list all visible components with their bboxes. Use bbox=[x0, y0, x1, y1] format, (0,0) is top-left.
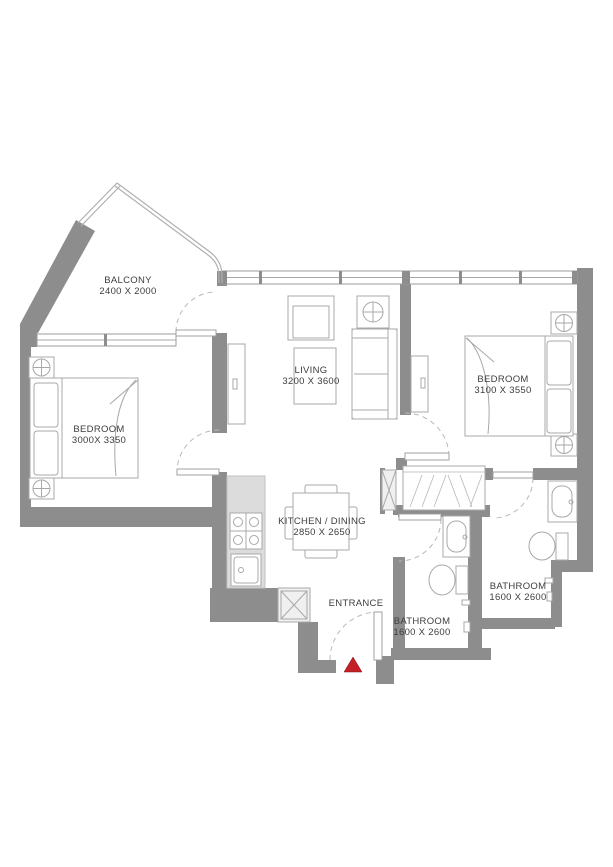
right-outer-wall bbox=[577, 268, 593, 572]
bedroom2-furniture bbox=[382, 312, 577, 510]
pillow bbox=[34, 431, 58, 475]
bedroom1-door-leaf bbox=[177, 469, 219, 475]
closet bbox=[403, 466, 485, 510]
kitchen-dims: 2850 X 2650 bbox=[293, 527, 350, 538]
balcony-dims: 2400 X 2000 bbox=[99, 286, 156, 297]
bathroom2-dims: 1600 X 2600 bbox=[489, 592, 546, 603]
living-label: LIVING bbox=[295, 365, 328, 376]
vestibule-bottom-wall bbox=[298, 660, 336, 673]
bathroom1-door-arc bbox=[399, 519, 441, 561]
toilet-tank bbox=[456, 566, 468, 594]
living-bedroom2-wall bbox=[400, 279, 411, 415]
floor-plan-page: BALCONY 2400 X 2000 BEDROOM 3000X 3350 L… bbox=[0, 0, 613, 867]
vestibule-left-wall bbox=[298, 622, 318, 664]
pillow bbox=[34, 383, 58, 427]
entrance-door-arc bbox=[330, 612, 378, 660]
bathroom2-top-wall-left bbox=[485, 468, 493, 480]
kitchen-bottom-wall bbox=[210, 588, 278, 622]
bedroom1-dims: 3000X 3350 bbox=[72, 435, 126, 446]
entrance-door-leaf bbox=[374, 612, 382, 660]
bathroom1-door-leaf bbox=[399, 514, 441, 520]
window-mullion bbox=[104, 334, 107, 346]
kitchen-left-wall bbox=[212, 472, 227, 588]
bathroom2-label: BATHROOM bbox=[490, 581, 547, 592]
living-furniture bbox=[228, 296, 397, 424]
window-mullion bbox=[459, 271, 462, 284]
window-mullion bbox=[259, 271, 262, 284]
bedroom1-living-wall bbox=[212, 333, 227, 433]
balcony-railing bbox=[78, 183, 222, 283]
bathroom1-left-wall bbox=[393, 557, 405, 660]
bedroom2-label: BEDROOM bbox=[477, 374, 528, 385]
bedroom1-bottom-wall bbox=[20, 507, 213, 527]
toilet bbox=[429, 565, 455, 595]
bedroom2-door-arc bbox=[405, 413, 449, 457]
bathroom2-right-wall bbox=[551, 560, 562, 627]
toilet bbox=[529, 532, 555, 560]
balcony-label: BALCONY bbox=[104, 275, 152, 286]
kitchen-label: KITCHEN / DINING bbox=[278, 516, 366, 527]
bathroom1-fixtures bbox=[429, 516, 470, 632]
armchair bbox=[288, 296, 334, 340]
window-mullion bbox=[519, 271, 522, 284]
bedroom1-door-arc bbox=[177, 430, 219, 472]
bathroom1-label: BATHROOM bbox=[394, 616, 451, 627]
pillow bbox=[547, 389, 571, 433]
balcony-door-leaf bbox=[176, 330, 216, 336]
bathroom2-door-leaf bbox=[493, 472, 533, 478]
window-mullion bbox=[339, 271, 342, 284]
floor-plan-svg: BALCONY 2400 X 2000 BEDROOM 3000X 3350 L… bbox=[0, 0, 613, 867]
bedroom2-dims: 3100 X 3550 bbox=[474, 385, 531, 396]
bathroom2-top-wall-right bbox=[533, 468, 577, 480]
bedroom2-door-leaf bbox=[405, 453, 449, 460]
toilet-tank bbox=[556, 533, 568, 560]
pillow bbox=[547, 341, 571, 385]
window-mullion bbox=[402, 271, 410, 284]
bedroom1-label: BEDROOM bbox=[73, 424, 124, 435]
kitchen-sink bbox=[231, 554, 261, 586]
bathroom1-dims: 1600 X 2600 bbox=[393, 627, 450, 638]
balcony-door-arc bbox=[176, 292, 216, 332]
entrance-label: ENTRANCE bbox=[329, 598, 384, 609]
entrance-marker-icon bbox=[344, 657, 362, 672]
living-dims: 3200 X 3600 bbox=[282, 376, 339, 387]
balcony-angled-wall bbox=[20, 220, 95, 333]
bathroom1-bottom-wall bbox=[391, 648, 491, 660]
bathroom2-bottom-wall bbox=[477, 618, 555, 629]
bathroom2-door-arc bbox=[493, 478, 533, 518]
